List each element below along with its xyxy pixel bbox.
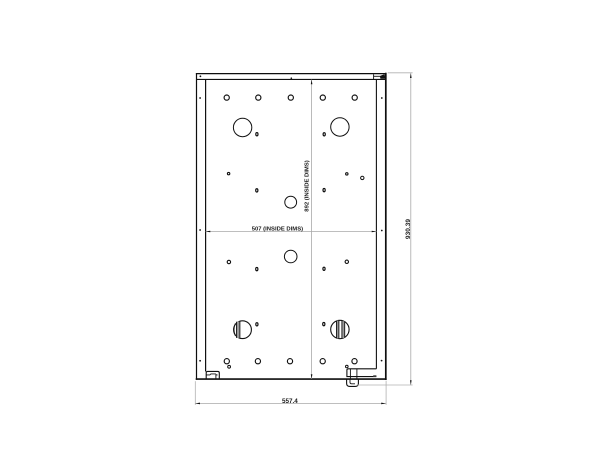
svg-text:507 (INSIDE DIMS): 507 (INSIDE DIMS) — [252, 227, 303, 233]
svg-text:557.4: 557.4 — [282, 398, 298, 405]
svg-text:930.39: 930.39 — [405, 219, 412, 240]
svg-text:892 (INSIDE DIMS): 892 (INSIDE DIMS) — [304, 160, 310, 211]
